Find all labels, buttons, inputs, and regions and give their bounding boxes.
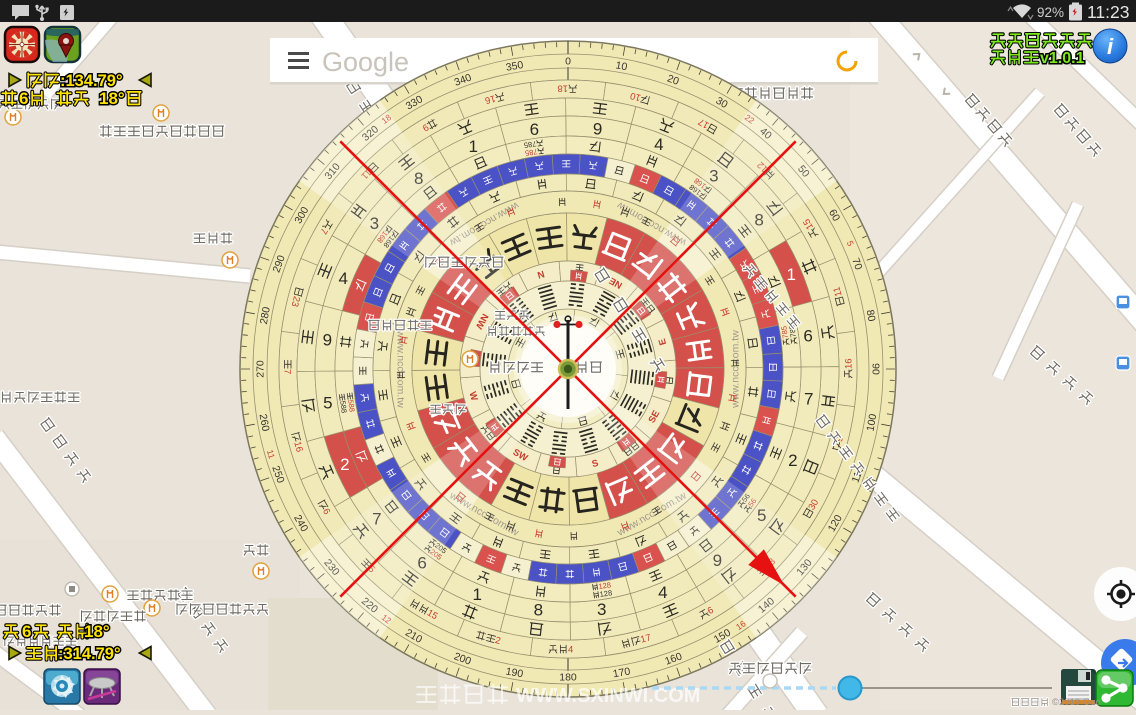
svg-text:©2019 Goo: ©2019 Goo bbox=[1052, 697, 1101, 708]
svg-text:6: 6 bbox=[803, 326, 812, 345]
svg-text:2: 2 bbox=[340, 455, 349, 474]
svg-text:180: 180 bbox=[559, 672, 577, 684]
svg-text:4: 4 bbox=[338, 269, 347, 288]
svg-text:1: 1 bbox=[468, 137, 477, 156]
svg-text:4: 4 bbox=[658, 583, 667, 602]
svg-text:10: 10 bbox=[615, 59, 629, 73]
svg-text:0: 0 bbox=[565, 56, 571, 68]
svg-text:i: i bbox=[1107, 34, 1114, 59]
svg-text:5: 5 bbox=[323, 394, 332, 413]
svg-text:18°: 18° bbox=[84, 622, 110, 641]
svg-text:270: 270 bbox=[255, 360, 267, 378]
svg-text:9: 9 bbox=[593, 119, 602, 138]
svg-text::314.79°: :314.79° bbox=[58, 645, 121, 663]
svg-text:9: 9 bbox=[323, 330, 332, 349]
svg-text:18°: 18° bbox=[99, 89, 125, 108]
svg-text:11:23: 11:23 bbox=[1087, 2, 1130, 22]
svg-text:WWW.SXINWI.COM: WWW.SXINWI.COM bbox=[516, 685, 700, 707]
svg-text:4: 4 bbox=[654, 135, 663, 154]
svg-text::134.79°: :134.79° bbox=[60, 72, 123, 90]
svg-text:3: 3 bbox=[597, 600, 606, 619]
svg-text:1: 1 bbox=[786, 265, 795, 284]
svg-text:4: 4 bbox=[568, 644, 573, 655]
svg-text:18: 18 bbox=[557, 83, 568, 94]
svg-text:6: 6 bbox=[19, 89, 28, 108]
svg-text:7: 7 bbox=[282, 369, 293, 374]
svg-text:6: 6 bbox=[530, 120, 539, 139]
svg-text:1: 1 bbox=[472, 585, 481, 604]
svg-text:7: 7 bbox=[804, 390, 813, 409]
svg-text:8: 8 bbox=[534, 601, 543, 620]
svg-text:16: 16 bbox=[843, 358, 854, 369]
svg-text:92%: 92% bbox=[1037, 5, 1064, 20]
svg-text:v1.0.1: v1.0.1 bbox=[1040, 50, 1085, 67]
svg-text:6: 6 bbox=[22, 622, 31, 641]
svg-text:2: 2 bbox=[788, 451, 797, 470]
svg-text:90: 90 bbox=[869, 363, 881, 375]
svg-text:Google: Google bbox=[322, 47, 409, 77]
svg-text:80: 80 bbox=[864, 309, 878, 323]
